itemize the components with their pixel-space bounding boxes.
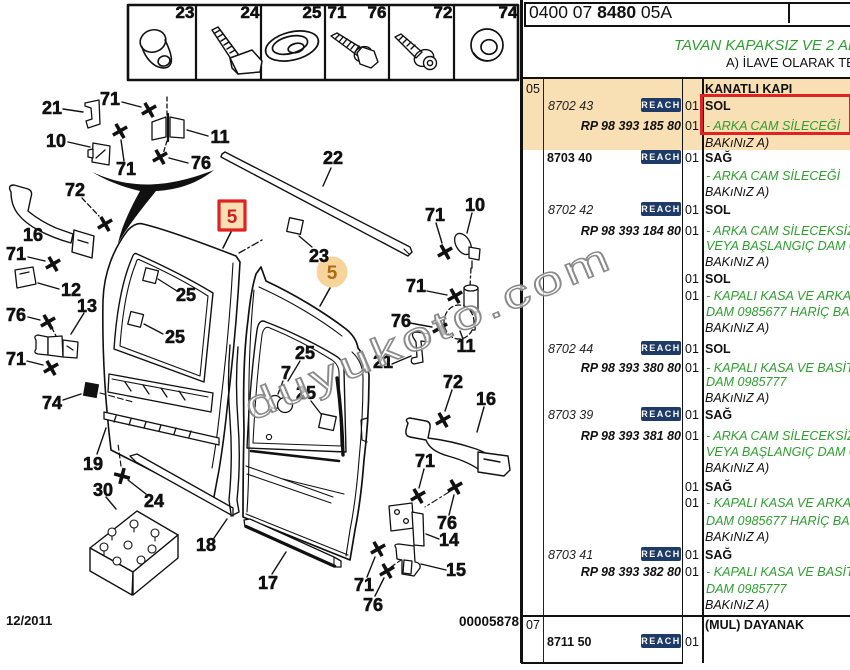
svg-text:12/2011: 12/2011 xyxy=(6,613,52,628)
svg-text:76: 76 xyxy=(368,3,387,22)
svg-text:76: 76 xyxy=(391,311,411,331)
svg-text:11: 11 xyxy=(210,127,229,147)
svg-text:71: 71 xyxy=(6,349,26,369)
svg-text:76: 76 xyxy=(363,595,383,615)
svg-text:76: 76 xyxy=(6,305,26,325)
svg-text:23: 23 xyxy=(309,246,329,266)
svg-text:71: 71 xyxy=(116,159,136,179)
svg-text:10: 10 xyxy=(465,195,485,215)
svg-text:5: 5 xyxy=(227,207,238,228)
svg-text:11: 11 xyxy=(456,336,475,356)
svg-text:24: 24 xyxy=(144,491,164,511)
svg-text:71: 71 xyxy=(406,276,426,296)
svg-text:71: 71 xyxy=(425,205,445,225)
svg-text:15: 15 xyxy=(446,560,466,580)
svg-text:72: 72 xyxy=(443,372,463,392)
svg-text:71: 71 xyxy=(415,451,435,471)
svg-text:71: 71 xyxy=(328,3,347,22)
svg-text:18: 18 xyxy=(196,535,216,555)
svg-text:21: 21 xyxy=(42,98,62,118)
svg-text:25: 25 xyxy=(303,3,322,22)
svg-text:10: 10 xyxy=(46,131,66,151)
svg-text:30: 30 xyxy=(93,480,113,500)
svg-text:25: 25 xyxy=(165,327,185,347)
svg-text:19: 19 xyxy=(83,454,103,474)
svg-text:24: 24 xyxy=(241,3,260,22)
svg-text:16: 16 xyxy=(23,225,43,245)
svg-text:23: 23 xyxy=(176,3,195,22)
svg-text:71: 71 xyxy=(100,89,120,109)
svg-text:74: 74 xyxy=(499,3,518,22)
svg-text:13: 13 xyxy=(77,296,97,316)
svg-text:25: 25 xyxy=(296,383,316,403)
svg-text:22: 22 xyxy=(323,148,343,168)
svg-text:5: 5 xyxy=(327,263,338,284)
svg-text:7: 7 xyxy=(281,363,291,383)
svg-text:71: 71 xyxy=(6,244,26,264)
svg-text:72: 72 xyxy=(65,180,85,200)
svg-text:00005878: 00005878 xyxy=(459,614,520,629)
svg-text:25: 25 xyxy=(295,343,315,363)
svg-text:25: 25 xyxy=(176,285,196,305)
svg-text:76: 76 xyxy=(191,153,211,173)
svg-text:72: 72 xyxy=(434,3,453,22)
svg-text:74: 74 xyxy=(42,393,62,413)
svg-text:71: 71 xyxy=(354,575,374,595)
svg-text:21: 21 xyxy=(373,352,393,372)
svg-text:14: 14 xyxy=(439,530,459,550)
svg-text:17: 17 xyxy=(258,573,278,593)
svg-text:16: 16 xyxy=(476,389,496,409)
